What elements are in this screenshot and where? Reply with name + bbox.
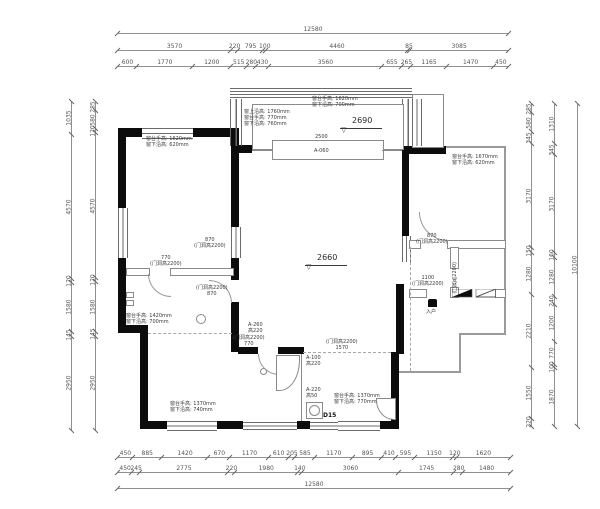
balcony-window-left (230, 99, 242, 146)
dim-segment: 1620 (457, 457, 510, 458)
dim-segment: 3060 (302, 472, 399, 473)
dim-segment: 1580 (71, 283, 72, 333)
floorplan-canvas: { "plan": { "levels": [ {"value": "2690"… (0, 0, 600, 509)
door-arc (148, 274, 171, 297)
dim-value: 1310 (549, 117, 556, 132)
wall-segment (140, 333, 148, 429)
dim-value: 1580 (90, 299, 97, 314)
drain-icon (260, 368, 267, 375)
level-value: 2690 (352, 116, 372, 125)
wall-segment (297, 421, 310, 429)
window-annotation: 窗台手高: 1370mm 窗下沿高: 740mm (170, 402, 216, 414)
window (118, 208, 128, 258)
step-symbol-outline-icon (476, 289, 496, 297)
dim-segment: 1150 (415, 457, 453, 458)
window-annotation: 窗台手高: 1370mm 窗下沿高: 770mm (334, 394, 380, 406)
wall-segment (118, 258, 126, 332)
window-annotation: 窗台手高: 1620mm 窗下沿高: 700mm (312, 97, 358, 109)
dim-value: 895 (362, 450, 373, 457)
dim-segment: 3170 (531, 144, 532, 248)
dim-segment: 1170 (315, 457, 353, 458)
dim-value: 1200 (549, 315, 556, 330)
dim-value: 1580 (66, 300, 73, 315)
dim-col-right-middle: 13103453170160128024012007701001870 (554, 104, 566, 426)
dim-segment: 4570 (71, 135, 72, 279)
window (338, 421, 380, 431)
dim-value: 1165 (421, 59, 436, 66)
step-symbols (452, 289, 496, 298)
dim-segment: 1480 (463, 472, 510, 473)
dim-segment: 1280 (531, 253, 532, 295)
dim-segment: 1170 (230, 457, 268, 458)
thin-wall (252, 150, 272, 151)
dim-value: 610 (273, 450, 284, 457)
dim-value: 600 (122, 59, 133, 66)
dim-value: 795 (245, 43, 256, 50)
dim-segment: 1470 (447, 66, 493, 67)
dim-value: 1420 (177, 450, 192, 457)
dim-value: 3560 (318, 59, 333, 66)
wall-segment (140, 421, 167, 429)
dim-segment: 1770 (137, 66, 193, 67)
dim-value: 4570 (66, 199, 73, 214)
dim-segment: 885 (133, 457, 162, 458)
dim-segment: 2950 (95, 337, 96, 430)
dim-segment: 10100 (577, 104, 578, 426)
door-annotation: (门洞高2200) 770 (233, 336, 265, 348)
dim-value: 450 (120, 450, 131, 457)
dim-value: 120 (449, 450, 460, 457)
dim-value: 220 (526, 417, 533, 428)
wall-segment (118, 128, 126, 208)
dim-value: 1745 (419, 465, 434, 472)
dim-value: 670 (214, 450, 225, 457)
dim-value: 3170 (526, 188, 533, 203)
thin-wall (409, 289, 427, 298)
shower-tray (276, 355, 300, 391)
washer-drum-icon (309, 405, 320, 416)
dim-segment: 220 (531, 419, 532, 426)
d15-label: D15 (323, 412, 336, 419)
dim-value: 1480 (479, 465, 494, 472)
dim-segment: 3570 (118, 50, 231, 51)
dim-value: 515 (233, 59, 244, 66)
dim-value: 2775 (176, 465, 191, 472)
dim-value: 770 (549, 348, 556, 359)
window (167, 421, 217, 431)
dim-value: 1770 (157, 59, 172, 66)
door-annotation: (门洞高2200) 1570 (326, 340, 358, 352)
dim-segment: 450 (494, 66, 508, 67)
dim-row-top-major: 35702207951004460853085 (118, 39, 508, 51)
entry-label: 入户 (426, 308, 436, 315)
dim-value: 4460 (329, 43, 344, 50)
dim-value: 2210 (526, 324, 533, 339)
wall-segment (402, 146, 409, 236)
thin-wall (446, 146, 506, 148)
dim-value: 140 (294, 465, 305, 472)
thin-wall (459, 333, 506, 335)
dashed-opening (303, 352, 391, 353)
dim-value: 4570 (90, 198, 97, 213)
dim-value: 3170 (549, 196, 556, 211)
window (231, 227, 241, 258)
wall-segment (238, 347, 258, 354)
dim-segment: 1550 (531, 368, 532, 419)
dim-row-bottom-overall: 12580 (118, 477, 510, 489)
dim-segment: 4460 (266, 50, 407, 51)
dim-value: 1150 (426, 450, 441, 457)
wall-segment (396, 284, 404, 354)
dim-value: 2950 (66, 376, 73, 391)
dim-segment: 1870 (554, 368, 555, 426)
dim-value: 1980 (259, 465, 274, 472)
drop-note: A-220 高50 (306, 388, 321, 400)
window-annotation: 窗台手高: 1670mm 窗下沿高: 620mm (452, 155, 498, 167)
dim-segment: 4570 (95, 133, 96, 278)
dim-segment: 895 (353, 457, 382, 458)
dim-value: 1200 (204, 59, 219, 66)
outlet-icon (126, 300, 134, 306)
dim-segment: 1310 (554, 104, 555, 144)
entry-door-icon (428, 299, 437, 307)
dim-value: 1170 (326, 450, 341, 457)
wall-segment (380, 421, 399, 429)
door-annotation: 870 (门洞高2200) (194, 238, 226, 250)
window-annotation: 窗台手高: 1420mm 窗下沿高: 700mm (126, 314, 172, 326)
thin-wall (382, 150, 402, 151)
dim-segment: 3085 (410, 50, 508, 51)
thin-wall (495, 289, 506, 298)
balcony-width-label: 2500 (315, 135, 328, 141)
dim-value: 3570 (167, 43, 182, 50)
dashed-opening (148, 333, 232, 334)
dim-row-bottom-major: 45024527752201980140306017452801480 (118, 461, 510, 473)
dim-segment: 1200 (193, 66, 231, 67)
dim-value: 10100 (572, 255, 579, 274)
dim-segment: 1980 (235, 472, 298, 473)
window-annotation: 窗台手高: 1620mm 窗下沿高: 620mm (146, 137, 192, 149)
dim-segment: 12580 (118, 33, 508, 34)
dim-col-right-inner: 2855803453170150128022101550220 (531, 104, 543, 426)
dim-value: 1870 (549, 390, 556, 405)
dim-value: 450 (119, 465, 130, 472)
dim-segment: 1200 (554, 305, 555, 342)
dim-value: 12580 (304, 481, 323, 488)
dim-col-left-outer: 1035457012015801452950 (71, 102, 83, 430)
dim-value: 595 (400, 450, 411, 457)
dim-row-top-minor: 6001770120051528043035606552651165147045… (118, 55, 508, 67)
dim-segment: 3560 (269, 66, 381, 67)
outlet-icon (126, 292, 134, 298)
level-value: 2660 (317, 253, 337, 262)
window-sill (243, 422, 297, 430)
dim-segment: 3170 (554, 155, 555, 253)
level-mark-balcony: 2690 (340, 108, 382, 129)
dim-segment: 1035 (71, 102, 72, 135)
dim-value: 2950 (90, 376, 97, 391)
dim-col-left-inner: 285580120457012015801452950 (95, 102, 107, 430)
dim-value: 1620 (476, 450, 491, 457)
level-mark-living: 2660 (305, 245, 347, 266)
dim-segment: 1165 (411, 66, 448, 67)
dim-value: 410 (383, 450, 394, 457)
dim-value: 1035 (66, 111, 73, 126)
dim-segment: 2775 (140, 472, 228, 473)
thin-wall (170, 268, 234, 276)
dim-row-top-overall: 12580 (118, 22, 508, 34)
door-annotation-vertical: (门洞高2200) (451, 262, 458, 294)
thin-wall (126, 268, 150, 276)
balcony-drop-note: A-060 (314, 149, 329, 155)
dim-col-right-overall: 10100 (577, 104, 589, 426)
dim-segment: 1745 (399, 472, 454, 473)
dim-segment: 2210 (531, 295, 532, 368)
door-annotation: 1100 (门洞高2200) (412, 276, 444, 288)
wall-segment (217, 421, 243, 429)
wall-segment (238, 145, 252, 153)
dim-segment: 2950 (71, 337, 72, 430)
dim-value: 430 (257, 59, 268, 66)
dashed-opening (410, 247, 411, 371)
dim-value: 450 (495, 59, 506, 66)
dim-value: 585 (299, 450, 310, 457)
dim-value: 580 (90, 114, 97, 125)
mini-balcony-window (412, 99, 422, 146)
wall-segment (118, 325, 148, 333)
dim-segment: 1580 (95, 282, 96, 332)
dim-segment: 12580 (118, 488, 510, 489)
dim-value: 1470 (463, 59, 478, 66)
door-annotation: 770 (门洞高2200) (150, 256, 182, 268)
door-annotation: (门洞高2200) 870 (196, 286, 228, 298)
dim-value: 3060 (343, 465, 358, 472)
dim-row-bottom-minor: 4508851420670117061020558511708954105951… (118, 446, 510, 458)
door-annotation: 870 (门洞高2200) (416, 234, 448, 246)
drop-note: A-100 高220 (306, 356, 321, 368)
dim-value: 1280 (526, 266, 533, 281)
thin-wall (459, 333, 461, 373)
wall-segment (278, 347, 304, 354)
window-annotation: 窗上沿高: 1760mm 窗台手高: 770mm 窗下沿高: 760mm (244, 110, 290, 127)
floor-drain-icon (196, 314, 206, 324)
dim-value: 655 (386, 59, 397, 66)
dim-value: 580 (526, 117, 533, 128)
dim-value: 1170 (242, 450, 257, 457)
dim-value: 12580 (303, 26, 322, 33)
dim-value: 885 (142, 450, 153, 457)
thin-wall (399, 371, 461, 373)
dim-segment: 1420 (162, 457, 209, 458)
dim-segment: 1280 (554, 258, 555, 297)
dim-value: 1280 (549, 270, 556, 285)
dim-segment: 795 (238, 50, 263, 51)
dim-value: 1550 (526, 386, 533, 401)
window-sill (310, 422, 338, 430)
thin-wall (301, 354, 302, 421)
drop-note: A-260 高220 (248, 323, 263, 335)
dim-value: 3085 (452, 43, 467, 50)
